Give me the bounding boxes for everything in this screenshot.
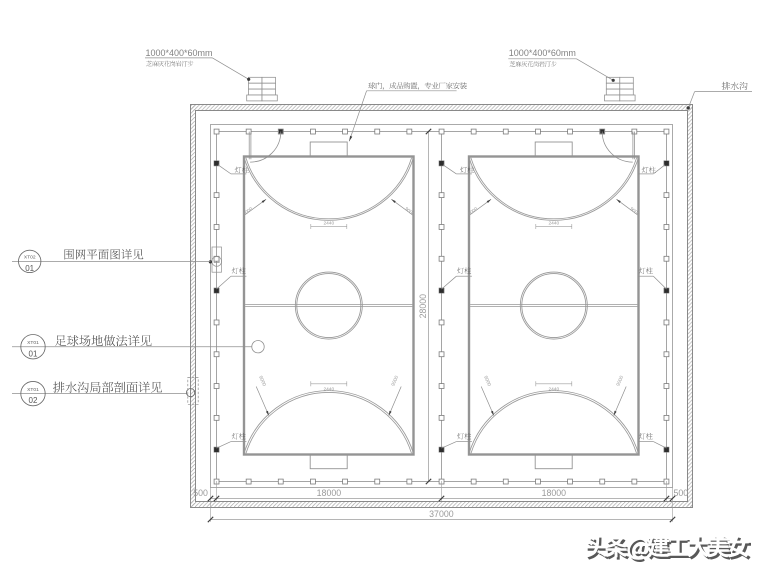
svg-text:2440: 2440 xyxy=(548,220,559,226)
svg-text:2440: 2440 xyxy=(548,387,559,393)
svg-text:XT02: XT02 xyxy=(24,255,36,261)
svg-text:28000: 28000 xyxy=(418,294,428,319)
svg-text:XT01: XT01 xyxy=(27,387,39,393)
svg-text:1000*400*60mm: 1000*400*60mm xyxy=(509,48,576,58)
svg-text:2440: 2440 xyxy=(323,220,334,226)
svg-text:01: 01 xyxy=(29,349,38,358)
svg-text:500: 500 xyxy=(193,488,208,498)
svg-text:18000: 18000 xyxy=(542,488,567,498)
svg-text:2440: 2440 xyxy=(323,387,334,393)
svg-text:500: 500 xyxy=(673,488,688,498)
svg-text:XT01: XT01 xyxy=(27,340,39,346)
svg-text:01: 01 xyxy=(25,264,34,273)
svg-text:1000*400*60mm: 1000*400*60mm xyxy=(146,48,213,58)
svg-text:18000: 18000 xyxy=(317,488,342,498)
svg-text:37000: 37000 xyxy=(429,509,454,519)
svg-text:02: 02 xyxy=(29,396,38,405)
